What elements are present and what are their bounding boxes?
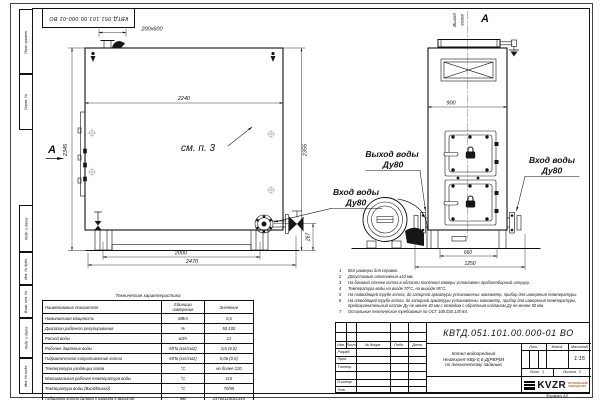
bolt bbox=[477, 177, 480, 180]
table-row: Температура уходящих газов°Сне более 220 bbox=[43, 364, 254, 374]
dim-base-2000: 2000 bbox=[174, 251, 188, 257]
dim-chimney: 200х600 bbox=[140, 27, 163, 33]
table-row: Максимальная рабочая температура воды°С1… bbox=[43, 374, 254, 384]
row-tkontr: Т.контр. bbox=[336, 363, 358, 371]
dim-width-2240: 2240 bbox=[177, 96, 191, 102]
drain-valve bbox=[95, 212, 102, 230]
sheet-cell: Лист1 bbox=[521, 368, 553, 376]
front-dimensions bbox=[415, 107, 525, 270]
row-prov: Пров. bbox=[336, 356, 358, 364]
col-header-units: Единицы измерения bbox=[162, 301, 205, 314]
front-outlet-dn: Ду80 bbox=[382, 160, 404, 170]
side-inlet-label: Вход воды bbox=[333, 187, 380, 197]
front-plinth bbox=[431, 230, 506, 249]
door-upper bbox=[444, 131, 499, 176]
table-row: Номинальная мощностьМВт0,6 bbox=[43, 314, 254, 324]
table-row: Габариты котла (Длина х ширина х высота)… bbox=[43, 394, 254, 400]
gas-outlet-label-1: Выход bbox=[452, 13, 457, 27]
dim-width-900: 900 bbox=[446, 101, 456, 107]
gas-outlet-label-2: газов bbox=[460, 14, 465, 26]
note-item: 7Остальные технические требования по ОСТ… bbox=[337, 309, 589, 314]
drawing-sheet: Перв. примен. Справ. № Подп. и дата Инв.… bbox=[0, 0, 600, 400]
col-header-value: Значение bbox=[204, 301, 253, 314]
side-view: 200х600 2240 2345 2355 2000 2470 267 А с… bbox=[46, 27, 382, 268]
row-empty bbox=[336, 371, 358, 379]
dim-base-660: 660 bbox=[464, 250, 473, 256]
section-mark-a: А bbox=[47, 144, 56, 156]
tech-characteristics: Техническая характеристика Наименование … bbox=[42, 293, 254, 400]
dim-length-2470: 2470 bbox=[185, 259, 199, 265]
table-row: Гидравлическое сопротивление котлаМПа (к… bbox=[43, 354, 254, 364]
table-row: Диапазон рабочего регулирования%50-100 bbox=[43, 324, 254, 334]
bolt bbox=[457, 177, 460, 180]
col-data: Дата bbox=[408, 341, 426, 348]
mass-header: Масса bbox=[546, 343, 568, 350]
col-podp: Подп. bbox=[390, 341, 408, 348]
table-row: Расход водым3/ч21 bbox=[43, 334, 254, 344]
title-block: Изм. Лист № докум. Подп. Дата Разраб. Пр… bbox=[335, 322, 590, 393]
logo-subtitle: КОТЕЛЬНЫЙ ЗАВОД РЭП bbox=[568, 382, 588, 389]
front-outlet-label: Выход воды bbox=[365, 149, 419, 159]
note-item: 6На отводящей трубе котла, до запорной а… bbox=[337, 298, 589, 309]
crosshair-marks bbox=[88, 129, 275, 194]
callout-see-p3: см. п. 3 bbox=[181, 143, 215, 154]
product-name-line3: по техническому заданию bbox=[445, 362, 502, 368]
fan-blower bbox=[363, 198, 427, 249]
side-fittings bbox=[78, 112, 87, 196]
doc-number: КВТД.051.101.00.000-01 ВО bbox=[426, 323, 591, 343]
callout-leader bbox=[228, 127, 252, 146]
dim-height-2355: 2355 bbox=[303, 143, 309, 157]
front-inlet-label: Вход воды bbox=[529, 155, 576, 165]
hatch-window bbox=[441, 59, 496, 81]
row-razrab: Разраб. bbox=[336, 348, 358, 356]
side-inlet-dn: Ду80 bbox=[345, 198, 367, 208]
note-item: 4Температура воды на входе 70°С, на выхо… bbox=[337, 286, 589, 291]
front-inlet-leader bbox=[517, 177, 580, 212]
front-inlet-dn: Ду80 bbox=[541, 166, 563, 176]
boiler-body-side bbox=[85, 48, 283, 230]
door-lower bbox=[444, 180, 499, 225]
col-izm: Изм. bbox=[336, 341, 346, 348]
table-row: Температура воды (Вход/Выход)°С70/95 bbox=[43, 384, 254, 394]
lifting-lug-right bbox=[271, 52, 276, 62]
note-item: 5На подводящей трубе котла, до запорной … bbox=[337, 292, 589, 297]
manufacturer-logo: KVZR КОТЕЛЬНЫЙ ЗАВОД РЭП bbox=[521, 376, 591, 394]
inlet-valve-side bbox=[286, 211, 304, 234]
col-header-name: Наименование показателя bbox=[43, 301, 162, 314]
dim-full-1250: 1250 bbox=[464, 261, 475, 267]
row-utv: Утв. bbox=[336, 386, 358, 394]
inlet-flange-front bbox=[507, 213, 521, 234]
view-mark-a: А bbox=[480, 13, 489, 25]
front-view: 900 660 1250 Выход газов А Выход воды Ду… bbox=[352, 11, 579, 270]
scale-value: 1:15 bbox=[568, 350, 591, 368]
note-item: 1Все размеры для справок. bbox=[337, 268, 589, 273]
lit-header: Лит. bbox=[521, 343, 546, 350]
dim-height-2345: 2345 bbox=[63, 143, 69, 157]
lifting-lug-left bbox=[91, 52, 96, 62]
chimney-stub bbox=[101, 41, 125, 49]
col-ndocum: № докум. bbox=[356, 341, 390, 348]
logo-text: KVZR bbox=[537, 380, 566, 391]
note-item: 3На боковой стенке котла в области топоч… bbox=[337, 280, 589, 285]
note-item: 2Допустимые отклонения ±10 мм. bbox=[337, 274, 589, 279]
side-supports bbox=[95, 230, 268, 251]
tech-table-header-row: Наименование показателя Единицы измерени… bbox=[43, 301, 254, 314]
tech-table: Наименование показателя Единицы измерени… bbox=[42, 300, 254, 400]
scale-header: Масштаб bbox=[568, 343, 591, 350]
row-nkontr: Н.контр. bbox=[336, 379, 358, 387]
table-row: Рабочее давление водыМПа (кгс/см2)0,6 (6… bbox=[43, 344, 254, 354]
tech-table-title: Техническая характеристика bbox=[42, 293, 254, 300]
dim-flange-267: 267 bbox=[306, 233, 312, 243]
sheets-cell: Листов2 bbox=[553, 368, 591, 376]
col-list: Лист bbox=[346, 341, 356, 348]
product-name: Котел водогрейный Heatexpert-КВр-0,6-Д(Р… bbox=[426, 344, 521, 375]
logo-mark-icon bbox=[524, 381, 535, 390]
format-label: Формат А3 bbox=[546, 393, 568, 398]
technical-notes: 1Все размеры для справок. 2Допустимые от… bbox=[337, 268, 589, 315]
